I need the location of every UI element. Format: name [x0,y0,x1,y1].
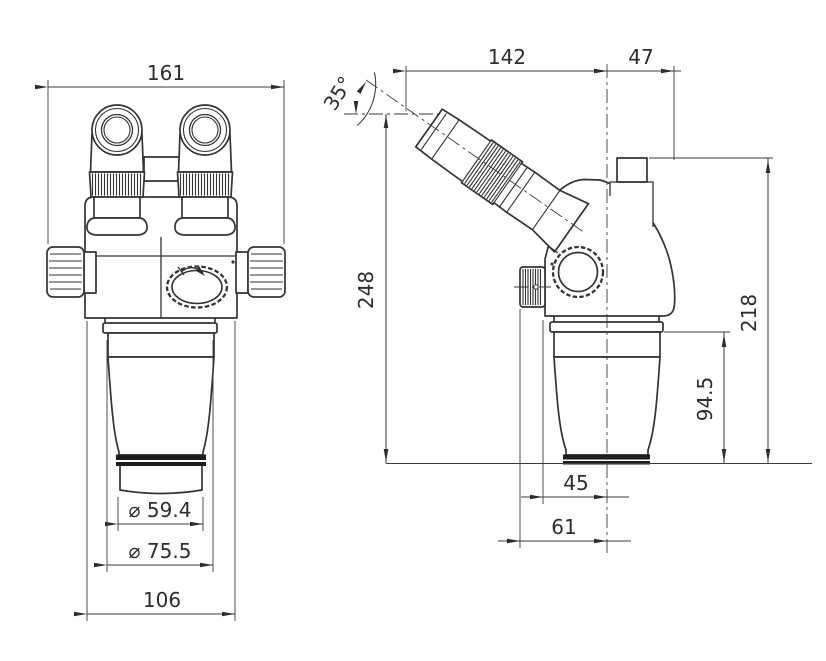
dim-knob-offset-label: 61 [551,515,576,539]
front-right-eyepiece [175,105,235,235]
side-eyepiece-tube [416,109,589,252]
front-zoom-dial [167,266,227,308]
dim-port-offset-label: 47 [628,45,653,69]
front-right-screw-dot [231,260,234,263]
side-focus-knob [514,267,551,307]
front-left-focus-knob [47,247,96,297]
front-objective-housing [103,318,217,494]
dim-front-offset-label: 45 [563,471,588,495]
dim-eyepiece-reach-label: 142 [488,45,526,69]
side-eyepiece-axis-centerline [366,80,585,233]
dim-overall-width-label: 161 [147,61,185,85]
dim-lens-inner-dia-label: ⌀ 59.4 [129,498,192,522]
technical-drawing-page: 161 ⌀ 59.4 ⌀ 75.5 106 [0,0,826,661]
dim-lens-outer-dia-label: ⌀ 75.5 [129,539,192,563]
front-left-eyepiece [87,105,147,235]
dim-overall-height-label: 248 [354,271,378,309]
side-objective-housing [550,316,663,465]
front-view-drawing: 161 ⌀ 59.4 ⌀ 75.5 106 [35,61,285,621]
dim-objective-height-label: 94.5 [693,377,717,422]
dim-body-width-label: 106 [143,588,181,612]
dim-eyepiece-angle-label: 35° [318,72,357,115]
dim-body-height-label: 218 [737,294,761,332]
microscope-dimension-drawing: 161 ⌀ 59.4 ⌀ 75.5 106 [0,0,826,661]
side-camera-port [610,158,653,227]
front-right-focus-knob [236,247,285,297]
side-view-drawing: 142 47 35° 248 218 [318,45,812,554]
